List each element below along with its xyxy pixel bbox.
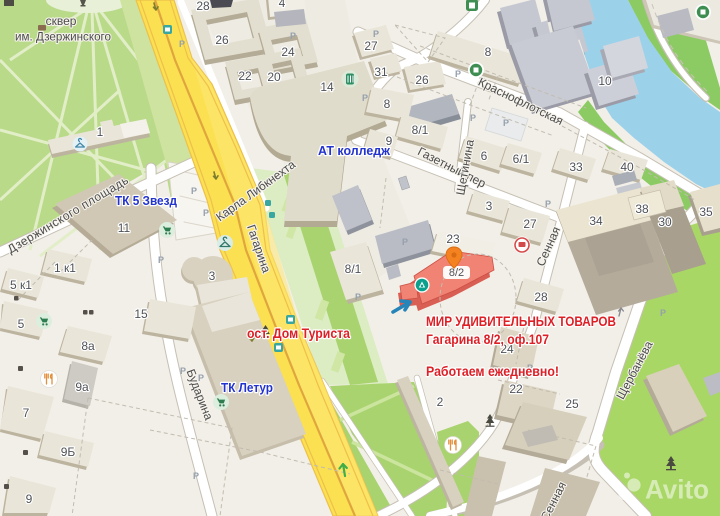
svg-text:27: 27: [364, 39, 378, 53]
svg-text:3: 3: [209, 269, 216, 283]
svg-text:P: P: [193, 471, 199, 481]
svg-text:P: P: [203, 208, 209, 218]
svg-text:8/1: 8/1: [345, 262, 362, 276]
svg-text:34: 34: [589, 214, 603, 228]
svg-text:8а: 8а: [81, 339, 95, 353]
svg-text:ТК Летур: ТК Летур: [221, 380, 273, 395]
svg-text:27: 27: [523, 217, 537, 231]
svg-text:P: P: [290, 31, 296, 41]
svg-text:P: P: [362, 93, 368, 103]
svg-text:P: P: [158, 255, 164, 265]
svg-text:20: 20: [267, 70, 281, 84]
svg-text:7: 7: [23, 406, 30, 420]
svg-text:9Б: 9Б: [61, 445, 76, 459]
svg-text:10: 10: [598, 74, 612, 88]
svg-text:26: 26: [215, 33, 229, 47]
svg-text:Avito: Avito: [645, 475, 709, 505]
svg-text:22: 22: [238, 69, 252, 83]
svg-text:АТ колледж: АТ колледж: [318, 143, 391, 158]
svg-text:8: 8: [384, 97, 391, 111]
svg-text:30: 30: [658, 215, 672, 229]
svg-text:38: 38: [635, 202, 649, 216]
svg-text:28: 28: [534, 290, 548, 304]
svg-text:P: P: [355, 292, 361, 302]
svg-text:35: 35: [699, 205, 713, 219]
svg-text:14: 14: [320, 80, 334, 94]
svg-text:25: 25: [565, 397, 579, 411]
svg-text:26: 26: [415, 73, 429, 87]
svg-text:P: P: [455, 69, 461, 79]
svg-text:8: 8: [485, 45, 492, 59]
svg-text:6/1: 6/1: [513, 152, 530, 166]
svg-text:8/1: 8/1: [412, 123, 429, 137]
svg-text:6: 6: [481, 149, 488, 163]
svg-text:ТК 5 Звезд: ТК 5 Звезд: [115, 193, 178, 208]
svg-text:23: 23: [446, 232, 460, 246]
svg-text:4: 4: [279, 0, 286, 10]
svg-text:9а: 9а: [75, 380, 89, 394]
svg-text:Гагарина 8/2, оф.107: Гагарина 8/2, оф.107: [426, 331, 549, 347]
svg-text:им. Дзержинского: им. Дзержинского: [15, 30, 111, 44]
svg-text:P: P: [402, 237, 408, 247]
svg-text:9: 9: [26, 492, 33, 506]
svg-text:22: 22: [509, 382, 523, 396]
svg-text:сквер: сквер: [46, 14, 77, 28]
svg-text:31: 31: [374, 65, 388, 79]
svg-text:8/2: 8/2: [449, 267, 464, 279]
svg-text:P: P: [470, 113, 476, 123]
svg-text:24: 24: [281, 45, 295, 59]
svg-text:P: P: [503, 118, 509, 128]
svg-text:40: 40: [620, 160, 634, 174]
svg-text:28: 28: [196, 0, 210, 13]
svg-text:1 к1: 1 к1: [54, 261, 76, 275]
svg-text:МИР УДИВИТЕЛЬНЫХ ТОВАРОВ: МИР УДИВИТЕЛЬНЫХ ТОВАРОВ: [426, 313, 616, 329]
svg-text:11: 11: [118, 221, 131, 235]
svg-text:5: 5: [18, 317, 25, 331]
svg-text:2: 2: [437, 395, 444, 409]
svg-text:P: P: [191, 186, 197, 196]
svg-text:1: 1: [97, 125, 104, 139]
svg-text:P: P: [660, 308, 666, 318]
svg-text:5 к1: 5 к1: [10, 278, 32, 292]
svg-text:3: 3: [486, 199, 493, 213]
svg-text:15: 15: [134, 307, 148, 321]
svg-text:P: P: [179, 39, 185, 49]
svg-text:Работаем ежедневно!: Работаем ежедневно!: [426, 363, 559, 379]
svg-text:33: 33: [569, 160, 583, 174]
svg-text:P: P: [545, 199, 551, 209]
svg-text:P: P: [373, 29, 379, 39]
svg-text:ост. Дом Туриста: ост. Дом Туриста: [247, 325, 350, 341]
